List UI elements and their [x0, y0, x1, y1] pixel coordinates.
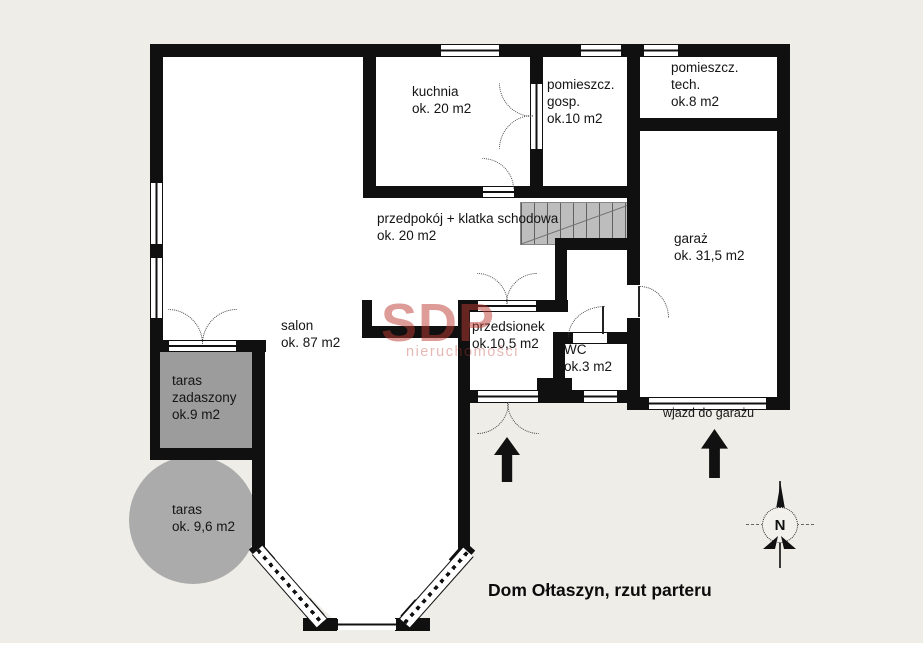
- room-label-przedsionek: przedsionek ok.10,5 m2: [472, 318, 545, 352]
- label-line: zadaszony: [172, 389, 237, 406]
- label-line: ok.10 m2: [547, 110, 615, 127]
- label-line: ok. 20 m2: [377, 227, 558, 244]
- window-wc-bottom: [583, 391, 618, 402]
- label-line: ok.10,5 m2: [472, 335, 545, 352]
- label-line: przedsionek: [472, 318, 545, 335]
- label-line: taras: [172, 501, 235, 518]
- window-salon-left-2: [151, 257, 162, 319]
- door-arc-entrance-left: [477, 402, 509, 434]
- entrance-arrow-icon: [494, 437, 520, 482]
- compass-north-label: N: [775, 517, 786, 534]
- room-label-taras: taras ok. 9,6 m2: [172, 501, 235, 535]
- wall-terrace-right: [252, 340, 265, 552]
- room-label-garaz: garaż ok. 31,5 m2: [674, 230, 745, 264]
- floor-garage-lower: [640, 340, 777, 400]
- window-utility-top: [580, 45, 622, 56]
- wall-salon-l-horizontal: [362, 326, 458, 338]
- door-entrance: [477, 391, 539, 402]
- room-label-pom-gosp: pomieszcz. gosp. ok.10 m2: [547, 76, 615, 127]
- garage-arrow-icon: [701, 429, 728, 478]
- plan-title: Dom Ołtaszyn, rzut parteru: [488, 580, 712, 601]
- compass-rose: N: [762, 507, 798, 543]
- window-bay-bottom: [337, 619, 397, 630]
- label-line: ok.8 m2: [671, 93, 739, 110]
- floor-plan: salon ok. 87 m2 kuchnia ok. 20 m2 pomies…: [0, 0, 923, 650]
- label-line: taras: [172, 372, 237, 389]
- label-line: ok. 9,6 m2: [172, 518, 235, 535]
- window-tech-top: [643, 45, 679, 56]
- room-label-wc: WC ok.3 m2: [564, 341, 612, 375]
- label-line: pomieszcz.: [547, 76, 615, 93]
- wall-stairs-bottom: [555, 238, 640, 250]
- label-line: ok.3 m2: [564, 358, 612, 375]
- bottom-margin: [0, 643, 923, 650]
- room-label-kuchnia: kuchnia ok. 20 m2: [412, 83, 471, 117]
- label-line: garaż: [674, 230, 745, 247]
- wall-terrace-left: [150, 340, 160, 460]
- wall-salon-right: [458, 312, 470, 555]
- door-arc-entrance-right: [507, 402, 539, 434]
- label-line: WC: [564, 341, 612, 358]
- room-label-salon: salon ok. 87 m2: [281, 317, 340, 351]
- label-line: pomieszcz.: [671, 59, 739, 76]
- label-line: tech.: [671, 76, 739, 93]
- label-line: ok. 20 m2: [412, 100, 471, 117]
- label-line: ok. 31,5 m2: [674, 247, 745, 264]
- label-line: przedpokój + klatka schodowa: [377, 210, 558, 227]
- room-label-przedpokoj: przedpokój + klatka schodowa ok. 20 m2: [377, 210, 558, 244]
- wall-tech-garage: [640, 118, 790, 131]
- room-label-pom-tech: pomieszcz. tech. ok.8 m2: [671, 59, 739, 110]
- wall-right: [777, 44, 790, 410]
- label-line: salon: [281, 317, 340, 334]
- wall-kitchen-left: [363, 50, 376, 198]
- window-kitchen-top: [440, 45, 500, 56]
- room-label-taras-zadaszony: taras zadaszony ok.9 m2: [172, 372, 237, 423]
- garage-driveway-label: wjazd do garażu: [663, 406, 754, 420]
- wall-utility-tech: [627, 44, 640, 198]
- label-line: ok.9 m2: [172, 406, 237, 423]
- label-line: ok. 87 m2: [281, 334, 340, 351]
- window-salon-left-1: [151, 182, 162, 245]
- label-line: gosp.: [547, 93, 615, 110]
- wall-terrace-bottom: [150, 448, 263, 460]
- label-line: kuchnia: [412, 83, 471, 100]
